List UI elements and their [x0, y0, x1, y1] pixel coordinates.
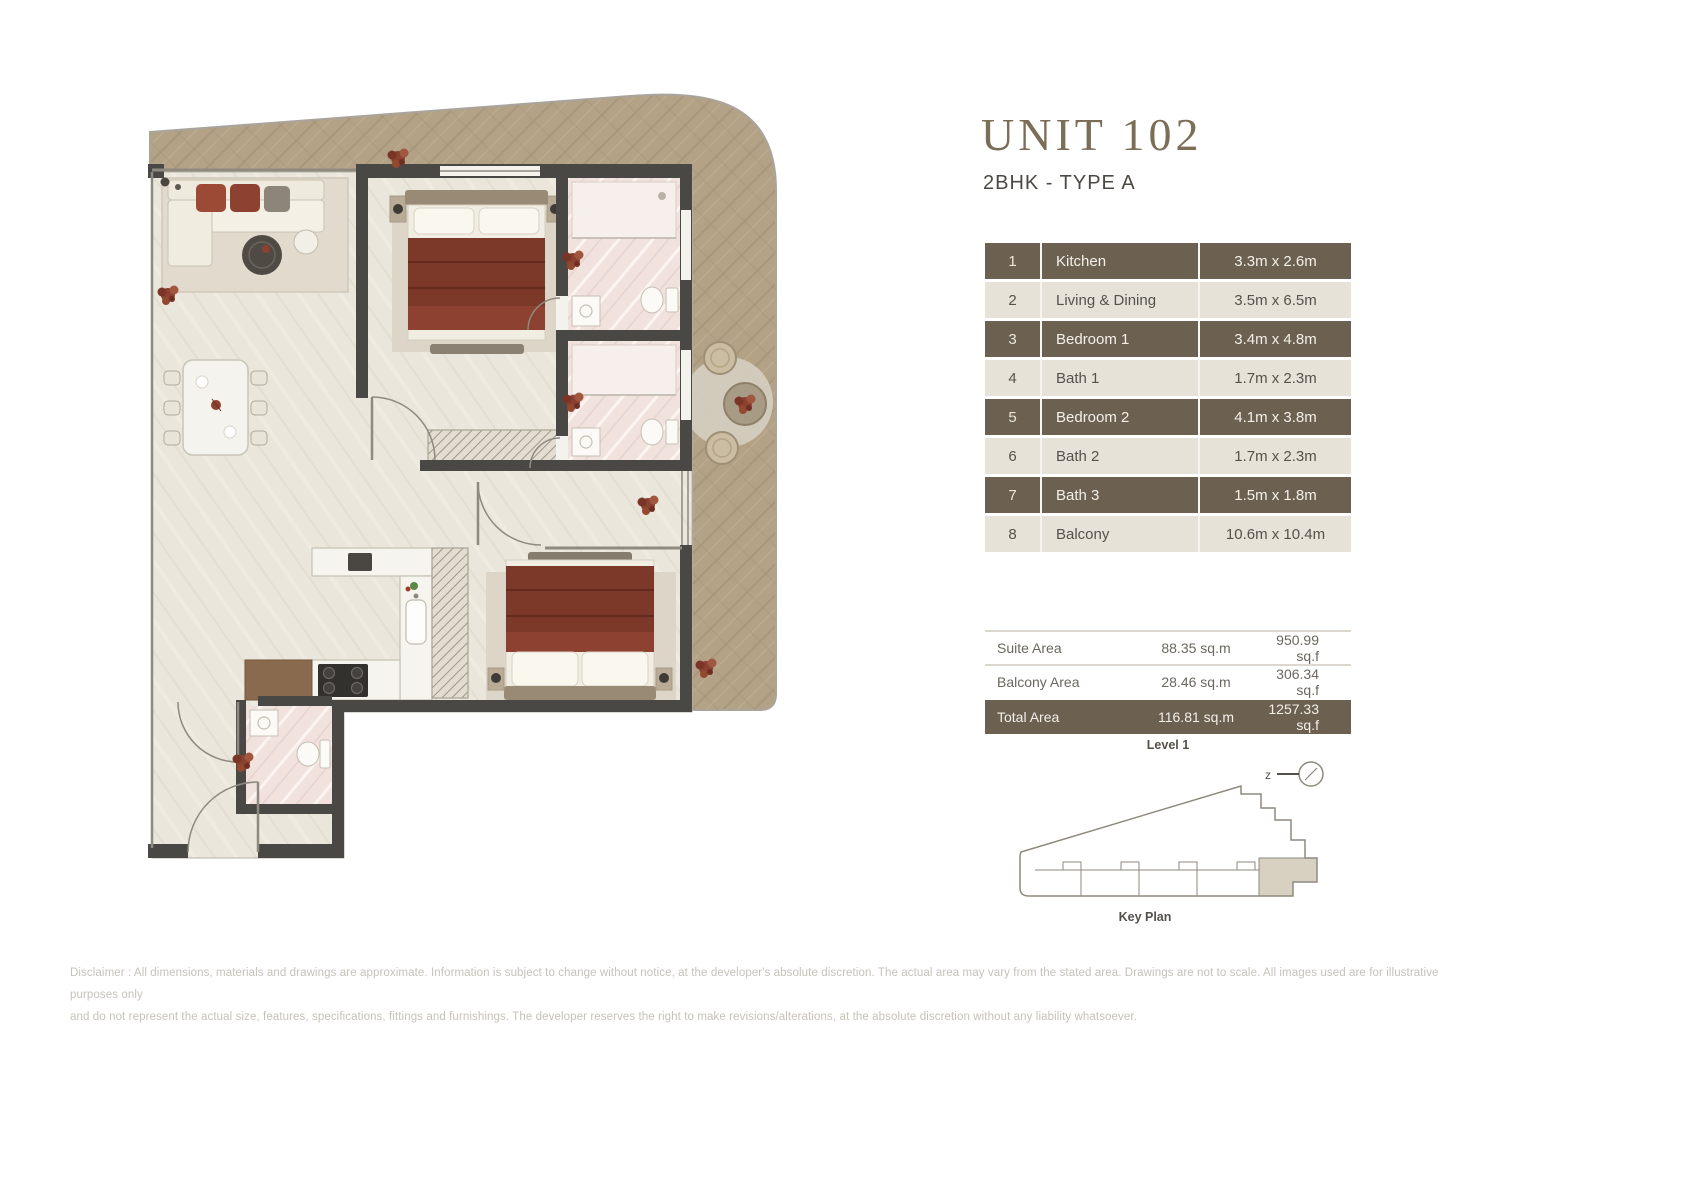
area-row-total: Total Area 116.81 sq.m 1257.33 sq.f [985, 698, 1351, 734]
wardrobe-bedroom-2 [432, 548, 468, 698]
room-dimensions: 4.1m x 3.8m [1198, 399, 1351, 435]
dining-table [164, 360, 267, 455]
room-name: Bedroom 2 [1040, 399, 1198, 435]
disclaimer-text: Disclaimer : All dimensions, materials a… [70, 962, 1450, 1028]
room-row-living-dining: 2 Living & Dining 3.5m x 6.5m [985, 282, 1351, 318]
bath-2 [568, 341, 680, 461]
room-number: 2 [985, 282, 1040, 318]
area-sqm: 28.46 sq.m [1137, 674, 1255, 690]
highlighted-unit [1259, 858, 1317, 896]
key-plan-label: Key Plan [985, 910, 1305, 924]
area-sqf: 1257.33 sq.f [1255, 701, 1351, 733]
room-number: 3 [985, 321, 1040, 357]
unit-title: UNIT 102 [981, 108, 1203, 161]
floor-plan-drawing [140, 85, 800, 875]
room-dimensions: 3.4m x 4.8m [1198, 321, 1351, 357]
room-number: 7 [985, 477, 1040, 513]
room-row-balcony: 8 Balcony 10.6m x 10.4m [985, 516, 1351, 552]
bath-1 [568, 178, 680, 330]
wardrobe-bedroom-1 [428, 430, 565, 464]
disclaimer-line-1: Disclaimer : All dimensions, materials a… [70, 962, 1450, 1006]
room-row-bath-3: 7 Bath 3 1.5m x 1.8m [985, 477, 1351, 513]
room-number: 8 [985, 516, 1040, 552]
room-name: Bath 1 [1040, 360, 1198, 396]
room-name: Bath 2 [1040, 438, 1198, 474]
rooms-table: 1 Kitchen 3.3m x 2.6m 2 Living & Dining … [985, 243, 1351, 555]
building-outline [1020, 786, 1317, 896]
area-sqm: 116.81 sq.m [1137, 709, 1255, 725]
room-number: 6 [985, 438, 1040, 474]
room-row-kitchen: 1 Kitchen 3.3m x 2.6m [985, 243, 1351, 279]
room-dimensions: 3.3m x 2.6m [1198, 243, 1351, 279]
room-row-bedroom-1: 3 Bedroom 1 3.4m x 4.8m [985, 321, 1351, 357]
area-sqf: 950.99 sq.f [1255, 632, 1351, 664]
room-name: Bath 3 [1040, 477, 1198, 513]
area-row-balcony: Balcony Area 28.46 sq.m 306.34 sq.f [985, 664, 1351, 698]
area-sqm: 88.35 sq.m [1137, 640, 1255, 656]
area-label: Total Area [985, 709, 1137, 725]
room-name: Balcony [1040, 516, 1198, 552]
room-name: Bedroom 1 [1040, 321, 1198, 357]
area-row-suite: Suite Area 88.35 sq.m 950.99 sq.f [985, 630, 1351, 664]
living-room [161, 178, 349, 293]
level-label: Level 1 [985, 738, 1351, 752]
bedroom-2 [486, 552, 676, 700]
room-number: 1 [985, 243, 1040, 279]
area-sqf: 306.34 sq.f [1255, 666, 1351, 698]
room-row-bedroom-2: 5 Bedroom 2 4.1m x 3.8m [985, 399, 1351, 435]
key-plan-drawing: z [1015, 760, 1335, 910]
bedroom-1 [390, 190, 563, 354]
room-dimensions: 1.5m x 1.8m [1198, 477, 1351, 513]
room-number: 5 [985, 399, 1040, 435]
room-dimensions: 1.7m x 2.3m [1198, 360, 1351, 396]
room-dimensions: 10.6m x 10.4m [1198, 516, 1351, 552]
stove [318, 664, 368, 697]
room-row-bath-1: 4 Bath 1 1.7m x 2.3m [985, 360, 1351, 396]
room-name: Living & Dining [1040, 282, 1198, 318]
room-name: Kitchen [1040, 243, 1198, 279]
areas-table: Suite Area 88.35 sq.m 950.99 sq.f Balcon… [985, 630, 1351, 734]
disclaimer-line-2: and do not represent the actual size, fe… [70, 1006, 1450, 1028]
compass-letter: z [1265, 768, 1271, 782]
info-panel: UNIT 102 2BHK - TYPE A 1 Kitchen 3.3m x … [985, 108, 1351, 948]
floor-plan-page: UNIT 102 2BHK - TYPE A 1 Kitchen 3.3m x … [0, 0, 1700, 1200]
unit-subtitle: 2BHK - TYPE A [983, 172, 1136, 195]
room-row-bath-2: 6 Bath 2 1.7m x 2.3m [985, 438, 1351, 474]
area-label: Balcony Area [985, 674, 1137, 690]
area-label: Suite Area [985, 640, 1137, 656]
room-dimensions: 1.7m x 2.3m [1198, 438, 1351, 474]
compass-icon: z [1265, 762, 1323, 786]
room-number: 4 [985, 360, 1040, 396]
room-dimensions: 3.5m x 6.5m [1198, 282, 1351, 318]
